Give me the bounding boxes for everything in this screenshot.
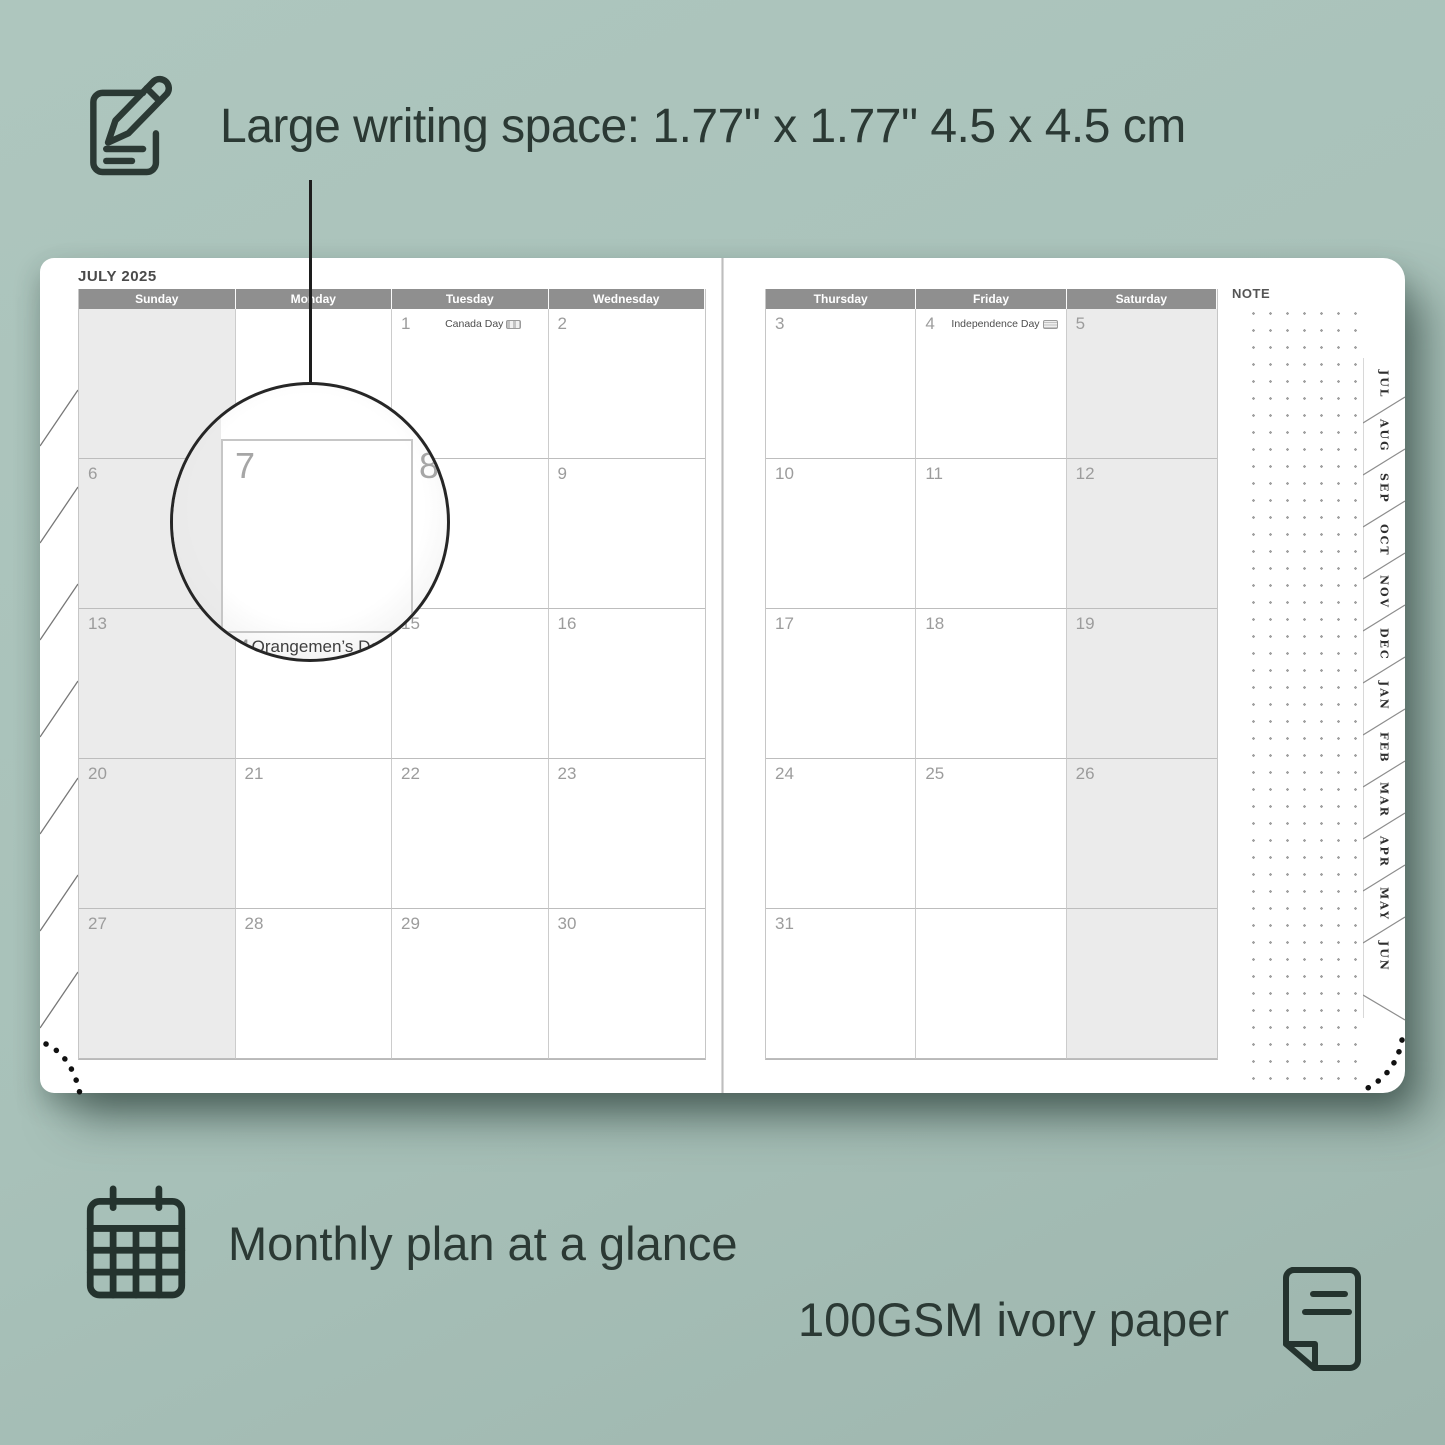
holiday-flag-badge bbox=[1043, 320, 1058, 329]
day-number: 23 bbox=[558, 764, 577, 784]
feature-paper-annotation: 100GSM ivory paper bbox=[798, 1264, 1371, 1374]
month-tab-jan: JAN bbox=[1363, 670, 1405, 722]
day-number: 11 bbox=[925, 464, 943, 484]
dot-grid bbox=[1240, 298, 1360, 1086]
day-cell: 30 bbox=[549, 909, 706, 1059]
day-header-wednesday: Wednesday bbox=[549, 289, 706, 309]
day-number: 26 bbox=[1076, 764, 1095, 784]
day-header-thursday: Thursday bbox=[766, 289, 916, 309]
month-tabs-strip: JULAUGSEPOCTNOVDECJANFEBMARAPRMAYJUN bbox=[1363, 358, 1405, 1018]
paper-feature-text: 100GSM ivory paper bbox=[798, 1292, 1229, 1347]
paper-icon bbox=[1271, 1264, 1371, 1374]
day-number: 5 bbox=[1076, 314, 1085, 334]
day-header-tuesday: Tuesday bbox=[392, 289, 549, 309]
day-cell: 25 bbox=[916, 759, 1066, 909]
day-number: 19 bbox=[1076, 614, 1095, 634]
day-cell bbox=[916, 909, 1066, 1059]
month-tab-oct: OCT bbox=[1363, 514, 1405, 566]
day-header-friday: Friday bbox=[916, 289, 1066, 309]
day-number: 29 bbox=[401, 914, 420, 934]
month-tab-nov: NOV bbox=[1363, 566, 1405, 618]
day-number: 2 bbox=[558, 314, 567, 334]
month-tab-sep: SEP bbox=[1363, 462, 1405, 514]
note-pencil-icon bbox=[86, 72, 178, 180]
feature-monthly-annotation: Monthly plan at a glance bbox=[84, 1184, 738, 1302]
day-cell: 24 bbox=[766, 759, 916, 909]
day-cell: 23 bbox=[549, 759, 706, 909]
month-tab-apr: APR bbox=[1363, 826, 1405, 878]
day-cell: 17 bbox=[766, 609, 916, 759]
left-edge-hatch bbox=[40, 386, 78, 1086]
day-number: 25 bbox=[925, 764, 944, 784]
day-cell: 20 bbox=[79, 759, 236, 909]
page-spread: JULY 2025 SundayMondayTuesdayWednesday1C… bbox=[40, 258, 1405, 1093]
day-cell: 16 bbox=[549, 609, 706, 759]
day-cell: 26 bbox=[1067, 759, 1217, 909]
day-number: 12 bbox=[1076, 464, 1095, 484]
day-header-saturday: Saturday bbox=[1067, 289, 1217, 309]
day-cell: 12 bbox=[1067, 459, 1217, 609]
day-cell: 15 bbox=[392, 609, 549, 759]
day-number: 20 bbox=[88, 764, 107, 784]
day-cell: 11 bbox=[916, 459, 1066, 609]
day-number: 30 bbox=[558, 914, 577, 934]
day-number: 9 bbox=[558, 464, 567, 484]
day-number: 18 bbox=[925, 614, 944, 634]
binding-seam bbox=[721, 258, 724, 1093]
magnified-holiday-line1: Orangemen’s Day bbox=[213, 637, 427, 657]
day-cell: 18 bbox=[916, 609, 1066, 759]
top-feature-text: Large writing space: 1.77" x 1.77" 4.5 x… bbox=[220, 99, 1186, 154]
day-number: 24 bbox=[775, 764, 794, 784]
day-number: 27 bbox=[88, 914, 107, 934]
magnifier-circle: 7 8 4 Orangemen’s Day (N.L.) bbox=[170, 382, 450, 662]
day-cell: 10 bbox=[766, 459, 916, 609]
day-number: 22 bbox=[401, 764, 420, 784]
pointer-line bbox=[309, 180, 312, 386]
day-number: 31 bbox=[775, 914, 794, 934]
day-cell: 27 bbox=[79, 909, 236, 1059]
day-number: 28 bbox=[245, 914, 264, 934]
day-number: 6 bbox=[88, 464, 97, 484]
month-tab-feb: FEB bbox=[1363, 722, 1405, 774]
holiday-label: Canada Day bbox=[422, 318, 545, 330]
day-cell: 31 bbox=[766, 909, 916, 1059]
calendar-right-page: ThursdayFridaySaturday34Independence Day… bbox=[765, 289, 1218, 1060]
day-number: 17 bbox=[775, 614, 794, 634]
day-cell: 21 bbox=[236, 759, 393, 909]
calendar-icon bbox=[84, 1184, 188, 1302]
month-tab-mar: MAR bbox=[1363, 774, 1405, 826]
day-cell: 29 bbox=[392, 909, 549, 1059]
magnified-day-number: 7 bbox=[235, 445, 255, 487]
day-number: 1 bbox=[401, 314, 410, 334]
holiday-label: Independence Day bbox=[946, 318, 1062, 330]
day-cell: 5 bbox=[1067, 309, 1217, 459]
day-header-monday: Monday bbox=[236, 289, 393, 309]
corner-dots-left bbox=[40, 1036, 92, 1100]
day-number: 3 bbox=[775, 314, 784, 334]
day-cell: 3 bbox=[766, 309, 916, 459]
day-cell: 19 bbox=[1067, 609, 1217, 759]
day-cell bbox=[1067, 909, 1217, 1059]
product-image-canvas: Large writing space: 1.77" x 1.77" 4.5 x… bbox=[0, 0, 1445, 1445]
magnifier-shaded-column bbox=[173, 385, 221, 659]
month-tab-aug: AUG bbox=[1363, 410, 1405, 462]
month-title: JULY 2025 bbox=[78, 268, 157, 285]
day-cell: 2 bbox=[549, 309, 706, 459]
day-number: 4 bbox=[925, 314, 934, 334]
month-tab-jun: JUN bbox=[1363, 930, 1405, 982]
day-number: 10 bbox=[775, 464, 794, 484]
day-header-sunday: Sunday bbox=[79, 289, 236, 309]
magnified-adjacent-day: 8 bbox=[419, 445, 439, 487]
holiday-flag-badge bbox=[506, 320, 521, 329]
day-number: 13 bbox=[88, 614, 107, 634]
monthly-feature-text: Monthly plan at a glance bbox=[228, 1216, 738, 1271]
month-tab-may: MAY bbox=[1363, 878, 1405, 930]
month-tab-jul: JUL bbox=[1363, 358, 1405, 410]
day-cell: 28 bbox=[236, 909, 393, 1059]
day-cell: 22 bbox=[392, 759, 549, 909]
month-tab-dec: DEC bbox=[1363, 618, 1405, 670]
day-cell: 9 bbox=[549, 459, 706, 609]
feature-top-annotation: Large writing space: 1.77" x 1.77" 4.5 x… bbox=[86, 72, 1186, 180]
day-cell: 4Independence Day bbox=[916, 309, 1066, 459]
corner-dots-right bbox=[1356, 1032, 1408, 1096]
day-number: 16 bbox=[558, 614, 577, 634]
day-number: 21 bbox=[245, 764, 264, 784]
